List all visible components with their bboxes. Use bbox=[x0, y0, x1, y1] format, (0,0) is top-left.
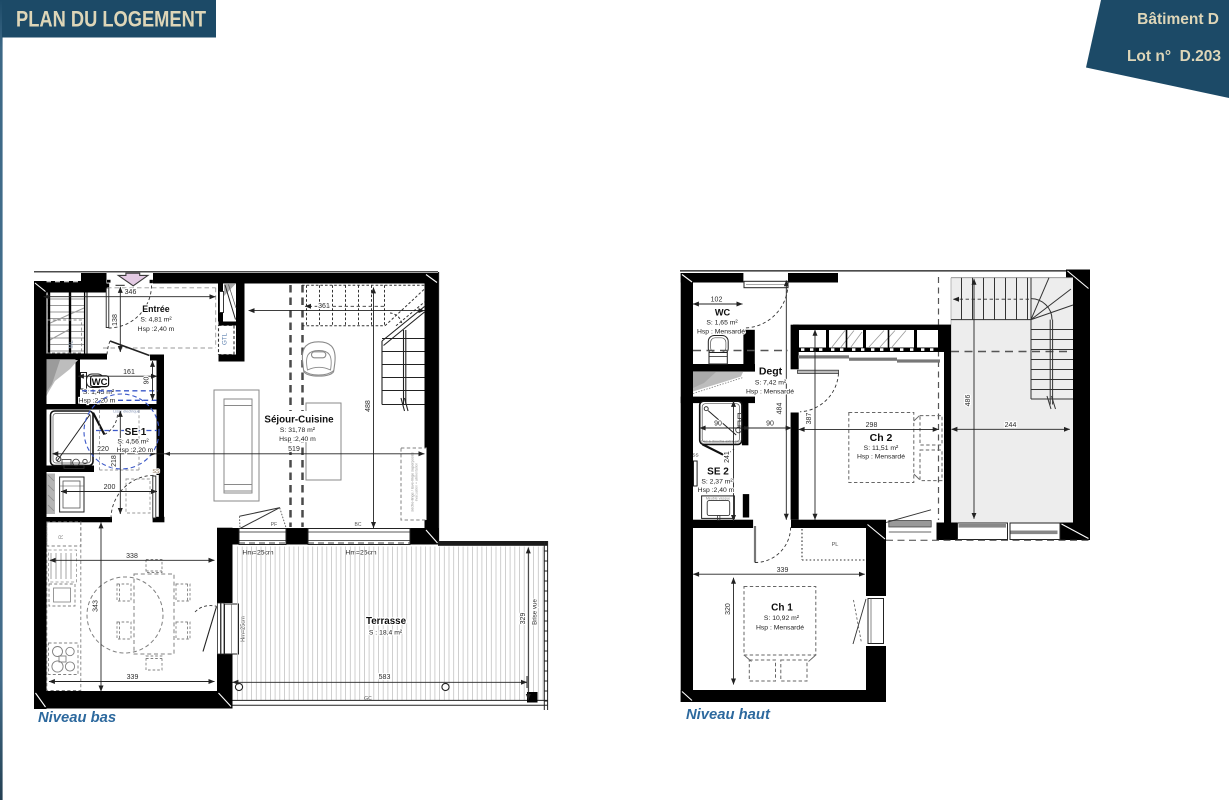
svg-text:220: 220 bbox=[97, 446, 109, 453]
svg-text:SS: SS bbox=[692, 453, 698, 458]
svg-text:PLAN DU LOGEMENT: PLAN DU LOGEMENT bbox=[16, 7, 206, 32]
svg-text:PF: PF bbox=[271, 522, 277, 528]
svg-text:S: 4,56 m²: S: 4,56 m² bbox=[117, 439, 149, 446]
svg-text:S: 7,42 m²: S: 7,42 m² bbox=[755, 380, 787, 387]
svg-text:241: 241 bbox=[724, 451, 731, 463]
svg-text:SE 1: SE 1 bbox=[125, 427, 147, 438]
svg-text:SE 2: SE 2 bbox=[707, 467, 729, 478]
svg-text:519: 519 bbox=[288, 446, 300, 453]
svg-text:BC: BC bbox=[355, 522, 362, 528]
svg-text:Hsp : Mensardé: Hsp : Mensardé bbox=[697, 329, 745, 336]
svg-text:Lot n° D.203: Lot n° D.203 bbox=[1127, 48, 1221, 65]
svg-text:S: 2,37 m²: S: 2,37 m² bbox=[701, 478, 733, 485]
svg-text:244: 244 bbox=[1005, 422, 1017, 429]
svg-text:90: 90 bbox=[143, 377, 150, 385]
svg-text:WC: WC bbox=[715, 308, 731, 318]
svg-text:320: 320 bbox=[725, 603, 732, 615]
svg-text:WC: WC bbox=[92, 377, 108, 388]
svg-text:S: 11,51 m²: S: 11,51 m² bbox=[864, 445, 899, 452]
svg-text:Bâtiment D: Bâtiment D bbox=[1137, 11, 1219, 28]
svg-text:Séjour-Cuisine: Séjour-Cuisine bbox=[264, 415, 334, 426]
svg-text:486: 486 bbox=[965, 395, 972, 407]
svg-text:Terrasse: Terrasse bbox=[366, 616, 407, 627]
svg-text:90: 90 bbox=[714, 421, 722, 428]
svg-text:200: 200 bbox=[104, 484, 116, 491]
svg-text:338: 338 bbox=[126, 553, 138, 560]
svg-text:GC: GC bbox=[364, 696, 372, 702]
svg-text:Hsp :2,20 m: Hsp :2,20 m bbox=[79, 398, 116, 405]
svg-text:ML: ML bbox=[69, 340, 75, 349]
svg-text:Entrée: Entrée bbox=[142, 304, 169, 314]
svg-text:Brise vue: Brise vue bbox=[532, 599, 539, 625]
svg-text:Ch 1: Ch 1 bbox=[771, 603, 793, 614]
svg-text:S: 1,45 m²: S: 1,45 m² bbox=[83, 389, 115, 396]
svg-text:102: 102 bbox=[711, 297, 723, 304]
svg-text:S : 18,4 m²: S : 18,4 m² bbox=[369, 630, 403, 637]
svg-text:Bac à douche extra plat: Bac à douche extra plat bbox=[701, 440, 742, 444]
svg-text:PL: PL bbox=[832, 542, 839, 548]
svg-text:Hsp :2,40 m: Hsp :2,40 m bbox=[279, 436, 316, 443]
svg-text:évacuation + alimentation: évacuation + alimentation bbox=[415, 463, 419, 502]
svg-text:Degt: Degt bbox=[759, 366, 783, 378]
svg-text:SS: SS bbox=[152, 469, 160, 475]
svg-text:387: 387 bbox=[806, 413, 813, 425]
svg-text:S: 1,65 m²: S: 1,65 m² bbox=[706, 320, 738, 327]
svg-text:S: 4,81 m²: S: 4,81 m² bbox=[140, 317, 172, 324]
svg-text:S: 31,78 m²: S: 31,78 m² bbox=[280, 427, 316, 434]
svg-text:Niveau haut: Niveau haut bbox=[686, 707, 771, 723]
svg-text:218: 218 bbox=[111, 455, 118, 467]
svg-text:Hm=25cm: Hm=25cm bbox=[241, 616, 247, 642]
svg-text:Ch 2: Ch 2 bbox=[870, 432, 893, 444]
svg-text:583: 583 bbox=[379, 674, 391, 681]
svg-text:Hsp :2,20 m: Hsp :2,20 m bbox=[117, 447, 154, 454]
svg-text:Hsp : Mensardé: Hsp : Mensardé bbox=[756, 625, 804, 632]
svg-text:Hsp :2,40 m: Hsp :2,40 m bbox=[698, 487, 735, 494]
svg-text:361: 361 bbox=[318, 303, 330, 310]
svg-text:90: 90 bbox=[766, 421, 774, 428]
svg-text:488: 488 bbox=[365, 400, 372, 412]
svg-text:GTL: GTL bbox=[222, 332, 229, 345]
svg-text:Hsp :2,40 m: Hsp :2,40 m bbox=[138, 326, 175, 333]
svg-text:138: 138 bbox=[112, 314, 119, 326]
svg-text:339: 339 bbox=[777, 567, 789, 574]
svg-text:Meuble vasque: Meuble vasque bbox=[706, 496, 730, 500]
svg-text:339: 339 bbox=[127, 674, 139, 681]
svg-text:Hsp : Mensardé: Hsp : Mensardé bbox=[746, 389, 794, 396]
svg-text:298: 298 bbox=[866, 422, 878, 429]
svg-text:161: 161 bbox=[123, 369, 135, 376]
svg-text:484: 484 bbox=[777, 403, 784, 415]
svg-text:Lisse électrique: Lisse électrique bbox=[113, 410, 139, 414]
svg-text:R: R bbox=[59, 534, 65, 539]
svg-text:346: 346 bbox=[125, 289, 137, 296]
svg-text:329: 329 bbox=[520, 613, 527, 625]
svg-text:S: 10,92 m²: S: 10,92 m² bbox=[764, 615, 800, 622]
svg-text:Niveau bas: Niveau bas bbox=[38, 710, 116, 726]
svg-text:Hsp : Mensardé: Hsp : Mensardé bbox=[857, 454, 905, 461]
svg-text:343: 343 bbox=[93, 600, 100, 612]
